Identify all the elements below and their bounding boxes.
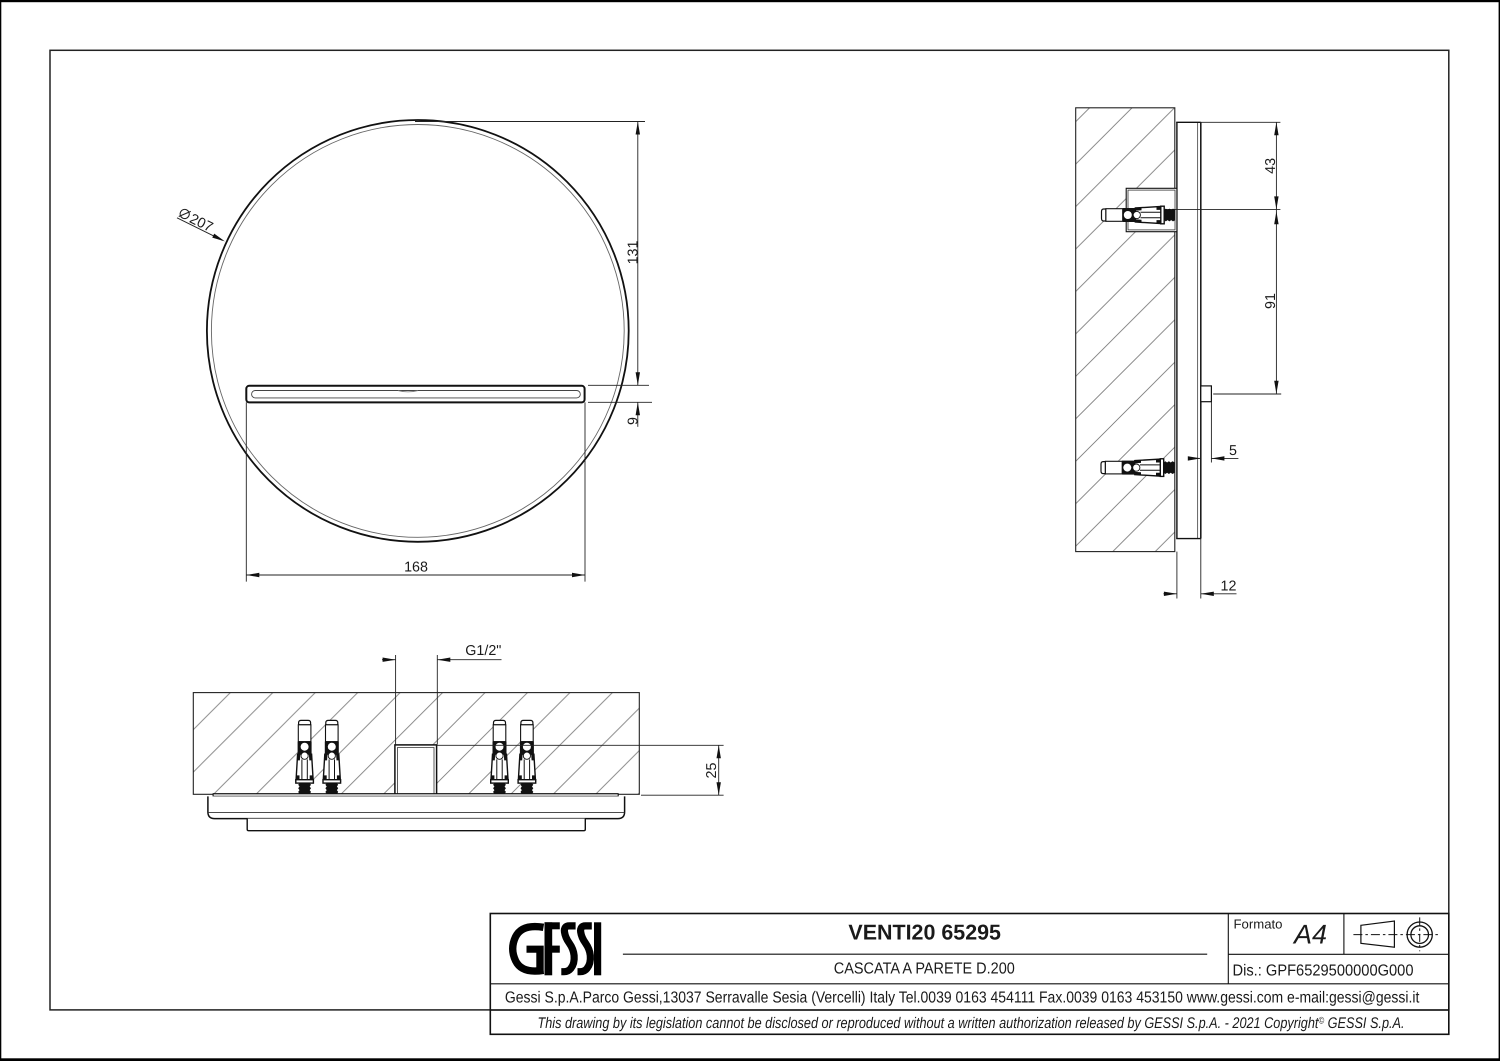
svg-text:9: 9 bbox=[625, 417, 641, 425]
svg-text:Gessi S.p.A.Parco Gessi,13037: Gessi S.p.A.Parco Gessi,13037 Serravalle… bbox=[505, 990, 1420, 1007]
svg-text:A4: A4 bbox=[1292, 920, 1327, 950]
svg-text:12: 12 bbox=[1221, 578, 1237, 594]
svg-text:25: 25 bbox=[704, 763, 720, 779]
svg-text:168: 168 bbox=[404, 559, 428, 575]
svg-text:131: 131 bbox=[625, 241, 641, 265]
svg-text:CASCATA A PARETE D.200: CASCATA A PARETE D.200 bbox=[834, 961, 1015, 978]
svg-text:5: 5 bbox=[1229, 443, 1237, 459]
svg-text:Formato: Formato bbox=[1234, 916, 1283, 931]
svg-text:VENTI20 65295: VENTI20 65295 bbox=[848, 921, 1001, 945]
svg-text:43: 43 bbox=[1263, 158, 1279, 174]
svg-text:G1/2": G1/2" bbox=[465, 643, 501, 659]
svg-text:This drawing by its legislatio: This drawing by its legislation cannot b… bbox=[538, 1015, 1405, 1032]
svg-text:91: 91 bbox=[1263, 293, 1279, 309]
svg-text:Dis.: GPF6529500000G000: Dis.: GPF6529500000G000 bbox=[1233, 962, 1414, 979]
